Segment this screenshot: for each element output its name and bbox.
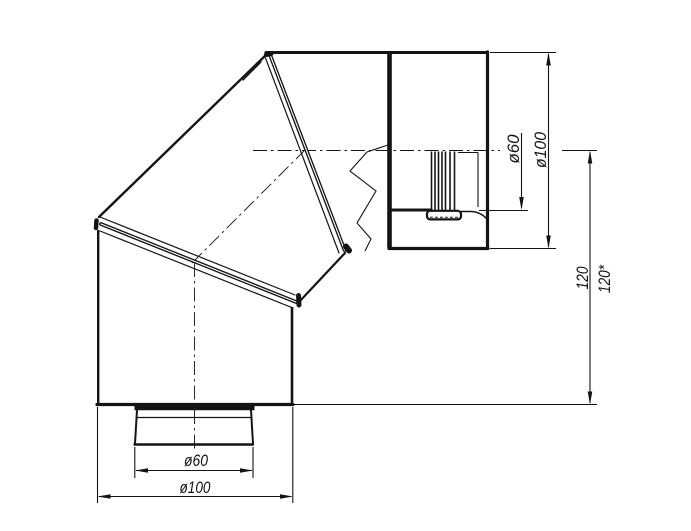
drawing-page: ø60 ø100 120 120* ø60 ø100 [0,0,691,531]
miter-seam-bands [96,54,349,309]
middle-gore-upper-edge [99,53,268,217]
arrow-up-height [588,151,593,164]
label-bottom-outer-diameter: ø100 [180,478,211,497]
middle-gore-upper-edge-inner-line [243,62,261,80]
arrow-up-right-outer-dia [546,53,551,66]
breakout-section [350,145,388,251]
liner-wall-continuation [461,212,487,219]
arrow-down-right-outer-dia [546,236,551,249]
dimensions [98,53,598,504]
lower-band-left-cap [96,221,97,229]
lower-band-seam-split [101,224,296,302]
lower-band-lower-line [100,231,293,308]
arrow-down-height [588,392,593,405]
arrow-right-bottom-outer [280,494,293,499]
label-height-nominal: 120 [573,266,592,289]
upper-band-seam-split [271,56,345,250]
arrow-right-bottom-inner [240,468,253,473]
lower-band-right-cap [299,296,300,306]
arrow-left-bottom-outer [98,494,111,499]
middle-gore-lower-edge [299,253,345,302]
upper-band-left-line [266,58,340,253]
arrow-down-right-inner-dia [519,197,524,210]
dimension-arrowheads [98,53,593,499]
label-bottom-inner-diameter: ø60 [184,451,208,470]
lower-band-upper-line [100,217,295,295]
break-line-zigzag [350,145,388,251]
spigot-left-wall [135,410,137,444]
label-right-inner-diameter: ø60 [504,134,523,164]
label-right-outer-diameter: ø100 [531,131,550,168]
upper-band-bottom-cap [346,247,349,251]
technical-drawing-canvas: ø60 ø100 120 120* ø60 ø100 [0,0,691,531]
label-height-starred: 120* [595,264,614,293]
arrow-left-bottom-inner [135,468,148,473]
inner-liner [390,152,487,220]
liner-corrugation [432,152,455,211]
upper-band-top-cap [267,54,272,55]
liner-corrugation-cap [427,211,461,220]
spigot-right-wall [251,410,253,444]
diagonal-axis-centerline [192,151,304,263]
